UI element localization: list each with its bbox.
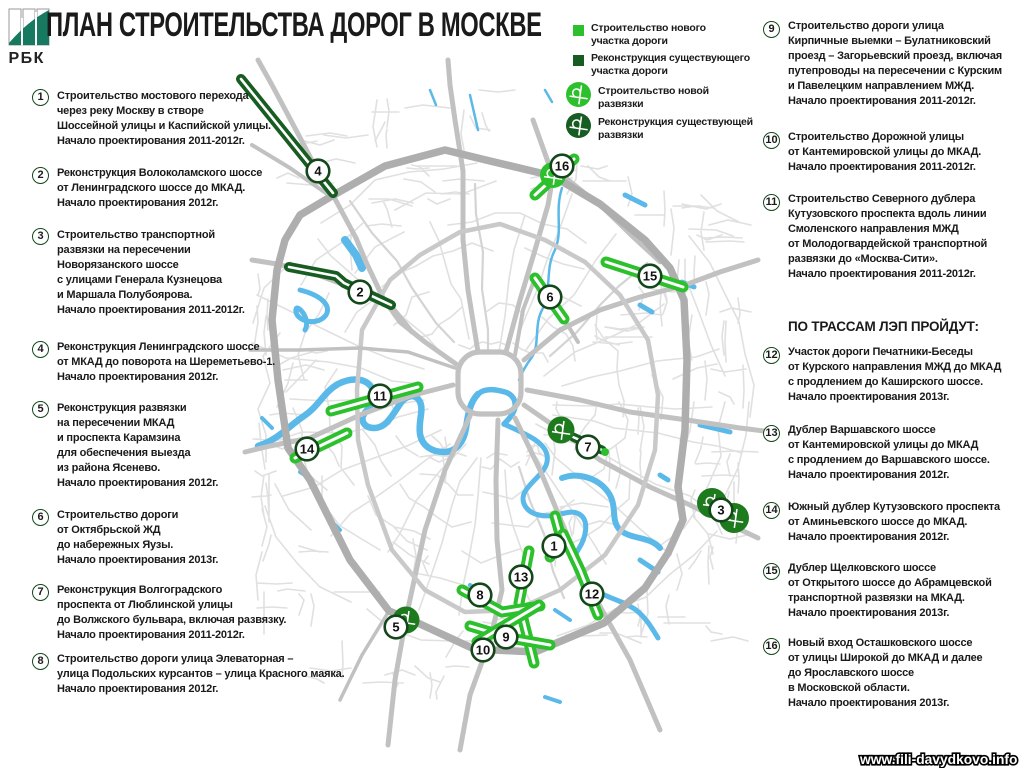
svg-text:12: 12 [585, 587, 599, 602]
svg-text:4: 4 [314, 164, 322, 179]
svg-text:5: 5 [392, 620, 399, 635]
svg-text:3: 3 [717, 503, 724, 518]
svg-text:1: 1 [550, 539, 557, 554]
svg-text:2: 2 [356, 285, 363, 300]
svg-text:11: 11 [373, 389, 387, 404]
svg-text:10: 10 [476, 643, 490, 658]
svg-text:16: 16 [555, 159, 569, 174]
svg-text:14: 14 [300, 442, 315, 457]
svg-text:15: 15 [643, 269, 657, 284]
svg-text:8: 8 [476, 588, 483, 603]
svg-text:9: 9 [502, 630, 509, 645]
svg-text:13: 13 [514, 570, 528, 585]
svg-text:7: 7 [584, 440, 591, 455]
svg-text:6: 6 [546, 290, 553, 305]
svg-text:РБК: РБК [9, 50, 45, 66]
svg-text:www.fili-davydkovo.info: www.fili-davydkovo.info [859, 752, 1017, 767]
